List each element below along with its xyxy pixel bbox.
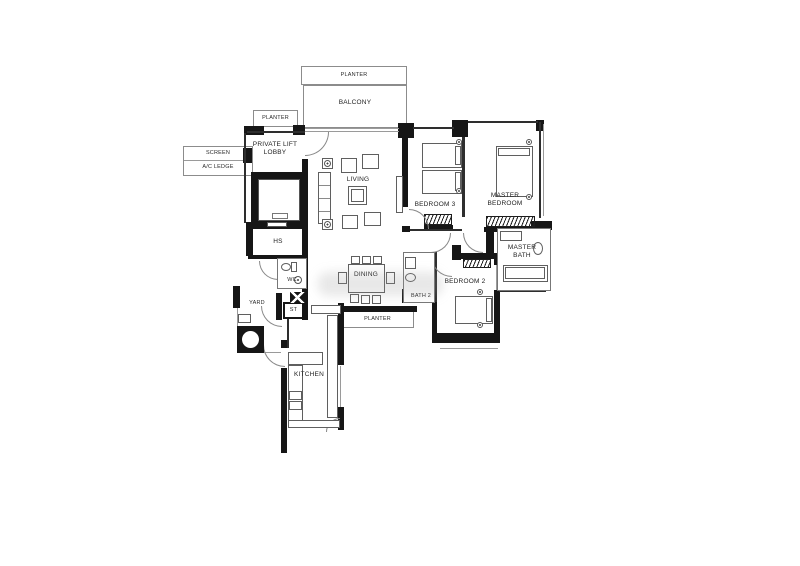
- toilet-tank: [291, 262, 297, 272]
- door-arc-master-bedroom: [463, 233, 483, 253]
- screen-label: SCREEN: [184, 150, 252, 157]
- pillow: [455, 146, 461, 165]
- ac-ledge-label: A/C LEDGE: [184, 164, 252, 171]
- wardrobe-bedroom2: [463, 259, 491, 268]
- armchair: [364, 212, 381, 226]
- door-arc-balcony: [305, 132, 329, 156]
- tv-console: [396, 176, 403, 213]
- lamp: [324, 221, 331, 228]
- washer-drum: [242, 331, 259, 348]
- wall-thin: [410, 229, 462, 231]
- wall-symbol: [477, 322, 483, 328]
- bathtub-inner: [505, 267, 545, 279]
- boundary-line: [440, 348, 498, 349]
- master-bedroom-label: MASTER BEDROOM: [482, 192, 528, 208]
- door-arc-yard: [261, 306, 282, 327]
- wall-segment: [293, 125, 305, 135]
- armchair: [362, 154, 379, 169]
- screen-acledge-divider: [184, 160, 252, 161]
- master-bath-label: MASTER BATH: [502, 244, 542, 260]
- armchair: [341, 158, 357, 173]
- hs-label: HS: [256, 238, 300, 246]
- planter-bottom-label: PLANTER: [341, 316, 414, 323]
- wall-segment: [233, 286, 240, 308]
- wall-thin: [413, 127, 454, 129]
- pillow: [498, 148, 530, 156]
- dining-chair: [351, 256, 360, 264]
- kitchen-appliance: [289, 391, 302, 400]
- wc-label: WC: [280, 277, 304, 284]
- door-arc-wc: [259, 261, 278, 280]
- kitchen-appliance: [289, 401, 302, 410]
- wall-segment: [339, 306, 417, 312]
- kitchen-counter: [327, 315, 338, 418]
- wall-segment: [452, 120, 468, 137]
- door-arc-bedroom3: [409, 209, 429, 229]
- floor-plan-canvas: PLANTER BALCONY PLANTER SCREEN A/C LEDGE…: [0, 0, 800, 566]
- sofa: [318, 172, 331, 224]
- dining-chair: [362, 256, 371, 264]
- wall-thin: [287, 318, 289, 348]
- armchair: [342, 215, 358, 229]
- dining-chair: [372, 295, 381, 304]
- pillow: [486, 298, 492, 322]
- wall-symbol: [456, 139, 462, 145]
- scan-artifact: [318, 272, 443, 296]
- private-lift-lobby-label: PRIVATE LIFT LOBBY: [246, 141, 304, 157]
- coffee-table-inner: [351, 189, 364, 202]
- planter-left-label: PLANTER: [253, 115, 298, 122]
- door-arc-kitchen: [263, 345, 285, 367]
- balcony-label: BALCONY: [303, 99, 407, 107]
- kitchen-counter: [311, 305, 341, 314]
- yard-label: YARD: [240, 300, 274, 307]
- lift-door: [267, 222, 287, 227]
- dining-chair: [361, 295, 370, 304]
- kitchen-label: KITCHEN: [286, 371, 332, 379]
- dining-chair: [373, 256, 382, 264]
- window-line: [340, 366, 341, 407]
- store-label: ST: [283, 307, 304, 314]
- wardrobe-master: [486, 216, 535, 227]
- living-label: LIVING: [338, 176, 378, 184]
- floor-trap: [290, 292, 305, 303]
- wall-thin: [247, 131, 305, 133]
- wall-symbol: [456, 188, 462, 194]
- door-arc-hall: [431, 233, 451, 253]
- yard-sink: [238, 314, 251, 323]
- lift-inner-detail: [272, 213, 288, 219]
- wall-segment: [398, 123, 414, 138]
- wall-segment: [281, 368, 287, 453]
- wall-thin: [468, 121, 538, 123]
- kitchen-counter: [288, 352, 323, 365]
- bedroom2-label: BEDROOM 2: [436, 278, 494, 286]
- bathroom-sink: [405, 257, 416, 269]
- kitchen-counter: [288, 420, 340, 428]
- wall-segment: [432, 333, 500, 343]
- wall-symbol: [477, 289, 483, 295]
- planter-top-label: PLANTER: [301, 72, 407, 79]
- toilet: [281, 263, 291, 271]
- wall-thin: [539, 122, 541, 218]
- window-line: [543, 124, 544, 216]
- bathroom-sink: [500, 231, 522, 241]
- bedroom3-label: BEDROOM 3: [406, 201, 464, 209]
- sliding-door-line: [305, 128, 399, 129]
- wall-symbol: [526, 139, 532, 145]
- lamp: [324, 160, 331, 167]
